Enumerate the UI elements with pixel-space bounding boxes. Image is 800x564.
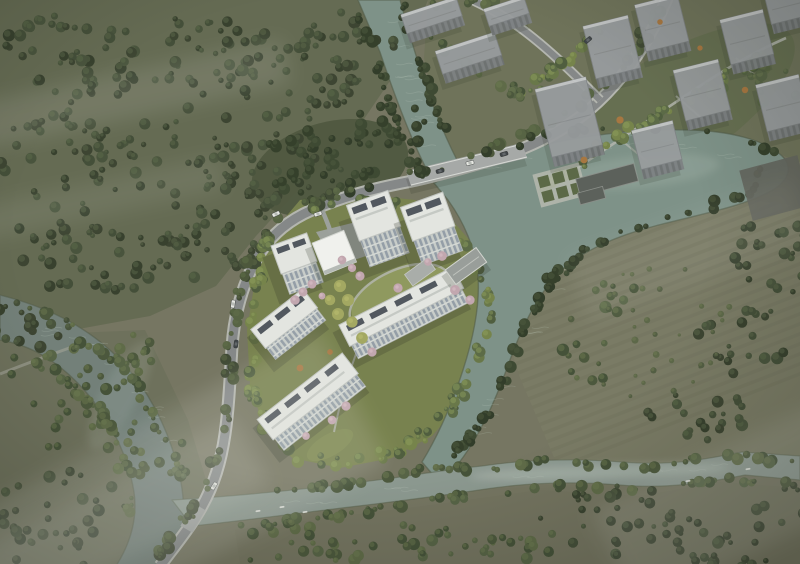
- masterplan-scene: Aerial masterplan rendering: [0, 0, 800, 564]
- vignette: [0, 0, 800, 564]
- atmosphere: [0, 0, 800, 564]
- aerial-rendering: Aerial masterplan rendering: [0, 0, 800, 564]
